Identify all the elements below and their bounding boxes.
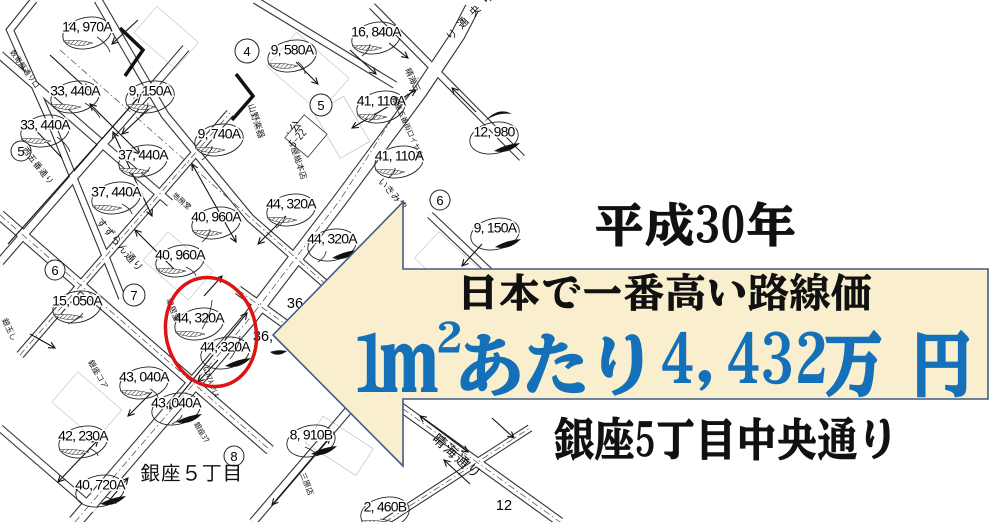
- svg-text:44, 320A: 44, 320A: [307, 231, 358, 247]
- svg-text:5: 5: [317, 98, 324, 113]
- svg-text:6: 6: [436, 193, 443, 208]
- svg-text:9, 580A: 9, 580A: [271, 42, 315, 58]
- svg-text:44, 320A: 44, 320A: [266, 196, 317, 212]
- svg-text:14, 970A: 14, 970A: [62, 19, 113, 35]
- svg-text:44, 320A: 44, 320A: [200, 339, 251, 355]
- svg-text:9, 150A: 9, 150A: [474, 220, 518, 236]
- svg-text:8: 8: [230, 449, 237, 464]
- svg-text:40, 720A: 40, 720A: [75, 477, 126, 493]
- svg-text:44, 320A: 44, 320A: [174, 310, 225, 326]
- svg-text:12, 980: 12, 980: [473, 124, 515, 140]
- svg-text:33, 440A: 33, 440A: [50, 83, 101, 99]
- svg-text:43, 040A: 43, 040A: [151, 395, 202, 411]
- svg-text:15, 050A: 15, 050A: [52, 293, 103, 309]
- svg-text:12: 12: [496, 498, 512, 514]
- svg-text:42, 230A: 42, 230A: [58, 428, 109, 444]
- svg-text:37, 440A: 37, 440A: [91, 184, 142, 200]
- svg-text:33, 440A: 33, 440A: [20, 117, 71, 133]
- svg-text:9, 150A: 9, 150A: [129, 83, 173, 99]
- svg-text:40, 960A: 40, 960A: [155, 247, 206, 263]
- svg-text:40, 960A: 40, 960A: [191, 209, 242, 225]
- svg-text:41, 110A: 41, 110A: [375, 148, 425, 164]
- svg-text:4: 4: [243, 44, 250, 59]
- svg-text:2, 460B: 2, 460B: [364, 499, 407, 515]
- svg-text:43, 040A: 43, 040A: [119, 369, 170, 385]
- svg-text:16, 840A: 16, 840A: [351, 24, 402, 40]
- svg-text:7: 7: [130, 288, 137, 303]
- svg-text:37, 440A: 37, 440A: [118, 147, 169, 163]
- svg-text:8, 910B: 8, 910B: [290, 427, 333, 443]
- svg-text:6: 6: [51, 263, 58, 278]
- svg-text:9, 740A: 9, 740A: [198, 126, 242, 142]
